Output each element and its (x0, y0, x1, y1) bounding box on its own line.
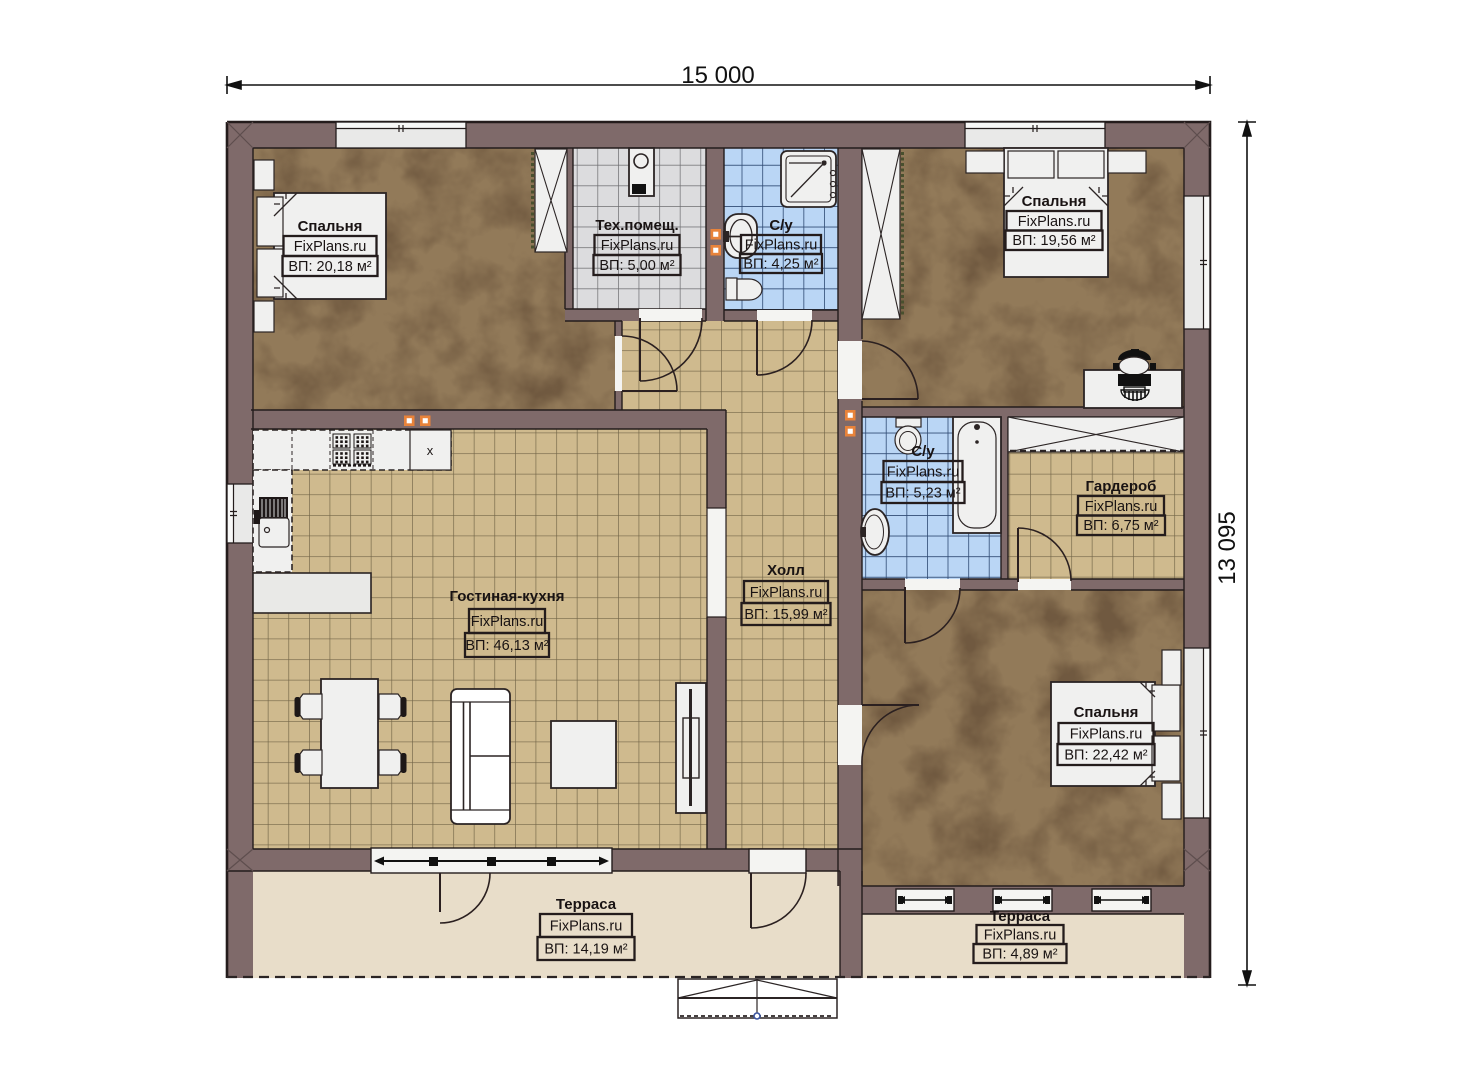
svg-text:FixPlans.ru: FixPlans.ru (294, 239, 367, 255)
svg-text:FixPlans.ru: FixPlans.ru (887, 465, 960, 481)
svg-text:Гардероб: Гардероб (1086, 478, 1157, 495)
svg-text:Гостиная-кухня: Гостиная-кухня (450, 588, 565, 605)
svg-text:Терраса: Терраса (990, 908, 1051, 925)
svg-text:FixPlans.ru: FixPlans.ru (471, 614, 544, 630)
svg-text:ВП: 4,89 м²: ВП: 4,89 м² (982, 947, 1057, 963)
svg-text:Спальня: Спальня (1074, 704, 1139, 721)
svg-text:FixPlans.ru: FixPlans.ru (984, 928, 1057, 944)
svg-text:ВП: 22,42 м²: ВП: 22,42 м² (1064, 748, 1147, 764)
svg-text:FixPlans.ru: FixPlans.ru (1070, 727, 1143, 743)
svg-text:Спальня: Спальня (1022, 193, 1087, 210)
svg-text:Спальня: Спальня (298, 218, 363, 235)
svg-text:FixPlans.ru: FixPlans.ru (750, 585, 823, 601)
svg-text:FixPlans.ru: FixPlans.ru (1018, 214, 1091, 230)
svg-text:Терраса: Терраса (556, 896, 617, 913)
svg-text:ВП: 14,19 м²: ВП: 14,19 м² (544, 942, 627, 958)
svg-text:ВП: 15,99 м²: ВП: 15,99 м² (744, 607, 827, 623)
svg-text:FixPlans.ru: FixPlans.ru (601, 238, 674, 254)
svg-text:13 095: 13 095 (1214, 511, 1241, 584)
svg-text:FixPlans.ru: FixPlans.ru (550, 919, 623, 935)
svg-text:15 000: 15 000 (681, 62, 754, 89)
svg-text:С/у: С/у (911, 443, 935, 460)
svg-text:ВП: 6,75 м²: ВП: 6,75 м² (1083, 518, 1158, 534)
svg-text:С/у: С/у (769, 217, 793, 234)
svg-text:ВП: 5,00 м²: ВП: 5,00 м² (599, 258, 674, 274)
svg-text:ВП: 5,23 м²: ВП: 5,23 м² (885, 486, 960, 502)
svg-text:x: x (427, 443, 434, 458)
svg-text:ВП: 19,56 м²: ВП: 19,56 м² (1012, 233, 1095, 249)
svg-text:ВП: 46,13 м²: ВП: 46,13 м² (465, 638, 548, 654)
svg-text:Тех.помещ.: Тех.помещ. (595, 217, 678, 234)
svg-text:FixPlans.ru: FixPlans.ru (745, 238, 818, 254)
svg-text:Холл: Холл (767, 562, 805, 579)
svg-text:ВП: 4,25 м²: ВП: 4,25 м² (743, 257, 818, 273)
svg-text:ВП: 20,18 м²: ВП: 20,18 м² (288, 259, 371, 275)
svg-text:FixPlans.ru: FixPlans.ru (1085, 499, 1158, 515)
